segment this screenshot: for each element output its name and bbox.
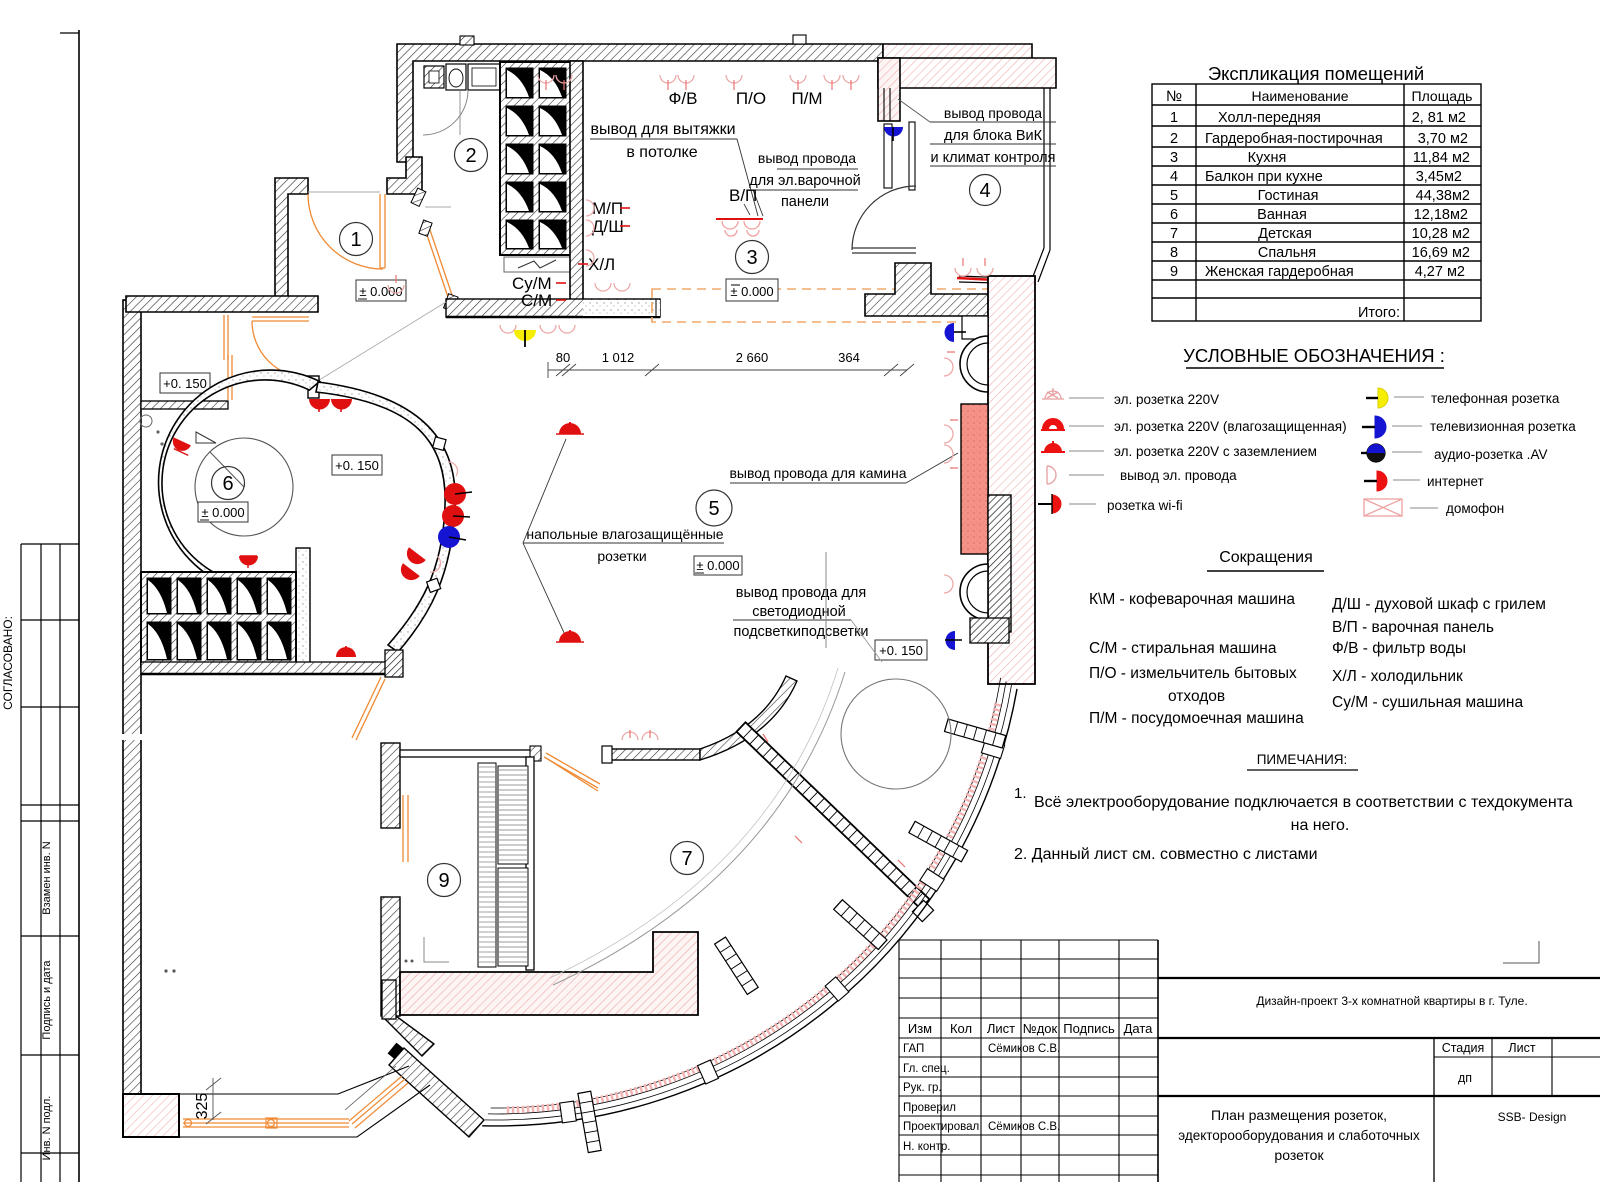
svg-text:П/О - измельчитель бытовых: П/О - измельчитель бытовых <box>1089 665 1297 682</box>
svg-text:аудио-розетка .AV: аудио-розетка .AV <box>1434 447 1547 462</box>
svg-text:вывод провода: вывод провода <box>944 105 1042 121</box>
svg-text:П/М - посудомоечная машина: П/М - посудомоечная машина <box>1089 710 1304 727</box>
svg-text:вывод для вытяжки: вывод для вытяжки <box>590 121 735 138</box>
svg-text:7: 7 <box>681 848 692 870</box>
svg-text:2: 2 <box>1170 131 1178 147</box>
svg-text:+0. 150: +0. 150 <box>879 643 923 658</box>
svg-text:2 660: 2 660 <box>736 350 769 365</box>
svg-text:К\М - кофеварочная машина: К\М - кофеварочная машина <box>1089 591 1295 608</box>
svg-text:Холл-передняя: Холл-передняя <box>1218 110 1321 126</box>
svg-text:325: 325 <box>194 1093 211 1120</box>
svg-text:ГАП: ГАП <box>903 1043 924 1055</box>
svg-text:4: 4 <box>1170 169 1178 185</box>
svg-text:С/М - стиральная машина: С/М - стиральная машина <box>1089 640 1277 657</box>
svg-text:в потолке: в потолке <box>626 144 697 161</box>
svg-text:Ванная: Ванная <box>1257 207 1307 223</box>
svg-text:± 0.000: ± 0.000 <box>359 284 402 299</box>
svg-text:Стадия: Стадия <box>1442 1041 1485 1055</box>
svg-text:364: 364 <box>838 350 860 365</box>
svg-text:для блока ВиК: для блока ВиК <box>944 128 1043 144</box>
svg-text:эдекторооборудования и слабото: эдекторооборудования и слаботочных <box>1178 1128 1420 1143</box>
svg-text:отходов: отходов <box>1168 688 1225 705</box>
svg-text:напольные влагозащищённые: напольные влагозащищённые <box>526 526 723 542</box>
svg-text:УСЛОВНЫЕ ОБОЗНАЧЕНИЯ :: УСЛОВНЫЕ ОБОЗНАЧЕНИЯ : <box>1183 345 1445 366</box>
svg-text:С/М: С/М <box>521 291 552 310</box>
svg-text:эл. розетка 220V с заземление: эл. розетка 220V с заземлением <box>1114 444 1317 459</box>
svg-text:№: № <box>1166 88 1182 105</box>
svg-text:Инв. N подл.: Инв. N подл. <box>41 1096 53 1161</box>
svg-text:В/П: В/П <box>729 186 757 205</box>
svg-text:телевизионная розетка: телевизионная розетка <box>1430 419 1576 434</box>
svg-text:4,27 м2: 4,27 м2 <box>1415 264 1465 280</box>
svg-text:7: 7 <box>1170 226 1178 242</box>
svg-text:2, 81 м2: 2, 81 м2 <box>1412 110 1466 126</box>
svg-text:12,18м2: 12,18м2 <box>1414 207 1468 223</box>
svg-text:Детская: Детская <box>1258 226 1312 242</box>
svg-text:Балкон при кухне: Балкон при кухне <box>1205 169 1323 185</box>
svg-text:вывод провода для камина: вывод провода для камина <box>729 465 906 481</box>
svg-text:16,69 м2: 16,69 м2 <box>1412 245 1470 261</box>
svg-text:ПИМЕЧАНИЯ:: ПИМЕЧАНИЯ: <box>1257 752 1348 767</box>
svg-text:3,70 м2: 3,70 м2 <box>1418 131 1468 147</box>
svg-text:44,38м2: 44,38м2 <box>1416 188 1470 204</box>
svg-text:8: 8 <box>1170 245 1178 261</box>
svg-text:Гл. спец.: Гл. спец. <box>903 1063 950 1075</box>
svg-text:эл. розетка 220V (влагозащищен: эл. розетка 220V (влагозащищенная) <box>1114 419 1347 434</box>
svg-text:Ф/В: Ф/В <box>669 89 698 108</box>
svg-text:СОГЛАСОВАНО:: СОГЛАСОВАНО: <box>1 616 15 710</box>
svg-text:Наименование: Наименование <box>1251 88 1348 104</box>
svg-text:+0. 150: +0. 150 <box>335 458 379 473</box>
svg-text:Площадь: Площадь <box>1412 88 1473 104</box>
svg-text:№док: №док <box>1023 1021 1058 1036</box>
svg-text:± 0.000: ± 0.000 <box>201 505 244 520</box>
svg-text:телефонная розетка: телефонная розетка <box>1431 391 1560 406</box>
svg-text:интернет: интернет <box>1427 474 1484 489</box>
svg-text:домофон: домофон <box>1446 501 1504 516</box>
svg-text:6: 6 <box>1170 207 1178 223</box>
svg-text:Всё электрооборудование подклю: Всё электрооборудование подключается в с… <box>1034 794 1573 811</box>
svg-text:подсветкиподсветки: подсветкиподсветки <box>733 624 868 640</box>
svg-text:Проектировал: Проектировал <box>903 1121 979 1133</box>
svg-text:для эл.варочной: для эл.варочной <box>749 173 861 189</box>
svg-text:дп: дп <box>1458 1071 1472 1085</box>
svg-text:Сёмиков С.В.: Сёмиков С.В. <box>988 1043 1060 1055</box>
svg-text:Подпись: Подпись <box>1063 1021 1115 1036</box>
svg-text:Гардеробная-постирочная: Гардеробная-постирочная <box>1205 131 1383 147</box>
svg-text:В/П - варочная панель: В/П - варочная панель <box>1332 619 1494 636</box>
svg-text:1.: 1. <box>1014 785 1027 802</box>
svg-text:Сокращения: Сокращения <box>1219 549 1313 566</box>
svg-text:4: 4 <box>979 180 990 202</box>
svg-text:Н. контр.: Н. контр. <box>903 1141 950 1153</box>
svg-text:9: 9 <box>1170 264 1178 280</box>
svg-text:± 0.000: ± 0.000 <box>696 558 739 573</box>
svg-text:эл. розетка 220V: эл. розетка 220V <box>1114 392 1219 407</box>
svg-text:1: 1 <box>350 229 361 251</box>
svg-text:розетка wi-fi: розетка wi-fi <box>1107 498 1183 513</box>
svg-text:Спальня: Спальня <box>1258 245 1316 261</box>
svg-text:вывод провода: вывод провода <box>758 150 856 166</box>
svg-text:розеток: розеток <box>1274 1147 1324 1163</box>
svg-text:6: 6 <box>222 473 233 495</box>
svg-text:5: 5 <box>1170 188 1178 204</box>
svg-text:10,28 м2: 10,28 м2 <box>1412 226 1470 242</box>
svg-text:Кухня: Кухня <box>1248 150 1287 166</box>
svg-text:вывод провода для: вывод провода для <box>736 585 867 601</box>
svg-text:+0. 150: +0. 150 <box>163 376 207 391</box>
svg-text:Рук. гр.: Рук. гр. <box>903 1082 942 1094</box>
svg-text:Сёмиков С.В.: Сёмиков С.В. <box>988 1121 1060 1133</box>
svg-text:3: 3 <box>746 247 757 269</box>
svg-text:Экспликация помещений: Экспликация помещений <box>1208 63 1424 84</box>
svg-text:Д/Ш - духовой шкаф с грилем: Д/Ш - духовой шкаф с грилем <box>1332 596 1546 613</box>
svg-text:на него.: на него. <box>1291 817 1350 834</box>
svg-text:Лист: Лист <box>987 1021 1015 1036</box>
svg-text:80: 80 <box>556 350 570 365</box>
svg-text:Д/Ш: Д/Ш <box>592 217 624 236</box>
svg-text:3: 3 <box>1170 150 1178 166</box>
svg-text:1 012: 1 012 <box>602 350 635 365</box>
svg-text:Х/Л - холодильник: Х/Л - холодильник <box>1332 668 1463 685</box>
svg-text:Женская гардеробная: Женская гардеробная <box>1205 264 1354 280</box>
svg-text:Дата: Дата <box>1124 1021 1154 1036</box>
svg-text:5: 5 <box>708 498 719 520</box>
svg-text:Су/М - сушильная машина: Су/М - сушильная машина <box>1332 694 1523 711</box>
svg-text:Лист: Лист <box>1508 1041 1535 1055</box>
svg-text:11,84 м2: 11,84 м2 <box>1413 150 1470 166</box>
svg-text:розетки: розетки <box>597 548 646 564</box>
svg-text:2. Данный лист см. совместно с: 2. Данный лист см. совместно с листами <box>1014 846 1318 863</box>
svg-text:панели: панели <box>781 194 829 210</box>
svg-text:Проверил: Проверил <box>903 1102 956 1114</box>
svg-text:М/П: М/П <box>592 199 623 218</box>
svg-text:Ф/В - фильтр воды: Ф/В - фильтр воды <box>1332 640 1466 657</box>
svg-text:вывод эл. провода: вывод эл. провода <box>1120 468 1237 483</box>
svg-text:П/М: П/М <box>791 89 822 108</box>
svg-text:П/О: П/О <box>736 89 766 108</box>
svg-text:Х/Л: Х/Л <box>588 255 615 274</box>
svg-text:и климат контроля: и климат контроля <box>931 150 1056 166</box>
svg-text:Дизайн-проект 3-х комнатной кв: Дизайн-проект 3-х комнатной квартиры в г… <box>1256 994 1527 1008</box>
svg-text:Кол: Кол <box>950 1021 972 1036</box>
svg-text:Гостиная: Гостиная <box>1258 188 1319 204</box>
svg-text:Подпись и дата: Подпись и дата <box>41 960 53 1040</box>
svg-text:3,45м2: 3,45м2 <box>1416 169 1462 185</box>
svg-text:Итого:: Итого: <box>1358 305 1400 321</box>
svg-text:1: 1 <box>1170 110 1178 126</box>
svg-text:± 0.000: ± 0.000 <box>730 284 773 299</box>
svg-text:Взамен инв. N: Взамен инв. N <box>41 841 53 914</box>
svg-text:2: 2 <box>465 145 476 167</box>
svg-text:светодиодной: светодиодной <box>752 604 846 620</box>
svg-text:План размещения розеток,: План размещения розеток, <box>1211 1107 1387 1123</box>
svg-text:SSB- Design: SSB- Design <box>1498 1110 1567 1124</box>
svg-text:9: 9 <box>438 870 449 892</box>
svg-text:Изм: Изм <box>908 1021 932 1036</box>
